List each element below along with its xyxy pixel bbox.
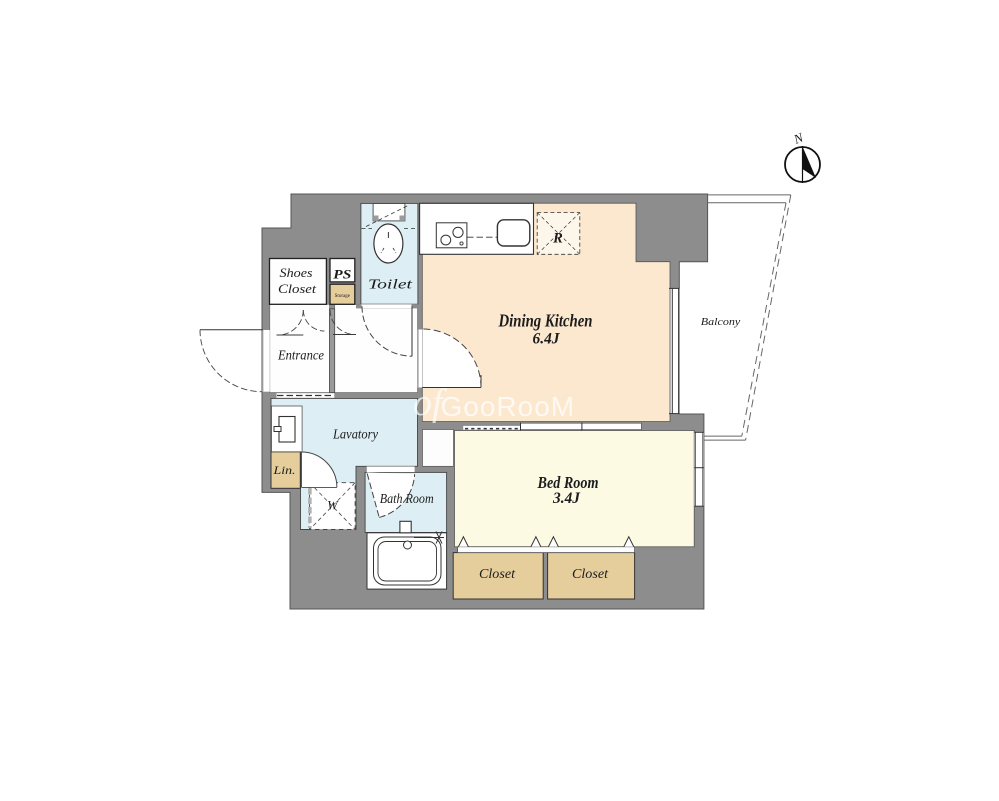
svg-text:N: N bbox=[791, 129, 807, 147]
svg-text:GooRooM: GooRooM bbox=[441, 391, 576, 422]
svg-text:6.4J: 6.4J bbox=[533, 331, 561, 348]
svg-text:Closet: Closet bbox=[479, 566, 516, 581]
svg-text:3.4J: 3.4J bbox=[552, 490, 581, 507]
svg-text:Storage: Storage bbox=[335, 294, 351, 299]
svg-text:Bath Room: Bath Room bbox=[380, 492, 434, 507]
svg-text:Shoes: Shoes bbox=[280, 265, 313, 280]
svg-text:Dining Kitchen: Dining Kitchen bbox=[498, 311, 593, 331]
svg-text:PS: PS bbox=[333, 267, 351, 282]
svg-text:Lin.: Lin. bbox=[272, 465, 295, 477]
svg-text:Lavatory: Lavatory bbox=[332, 428, 379, 443]
svg-text:Balcony: Balcony bbox=[701, 316, 741, 328]
svg-text:Closet: Closet bbox=[572, 566, 609, 581]
svg-text:Entrance: Entrance bbox=[277, 349, 324, 364]
svg-text:Toilet: Toilet bbox=[368, 278, 414, 293]
svg-text:R: R bbox=[552, 231, 563, 247]
svg-text:W: W bbox=[327, 499, 339, 513]
svg-text:Closet: Closet bbox=[278, 281, 316, 296]
